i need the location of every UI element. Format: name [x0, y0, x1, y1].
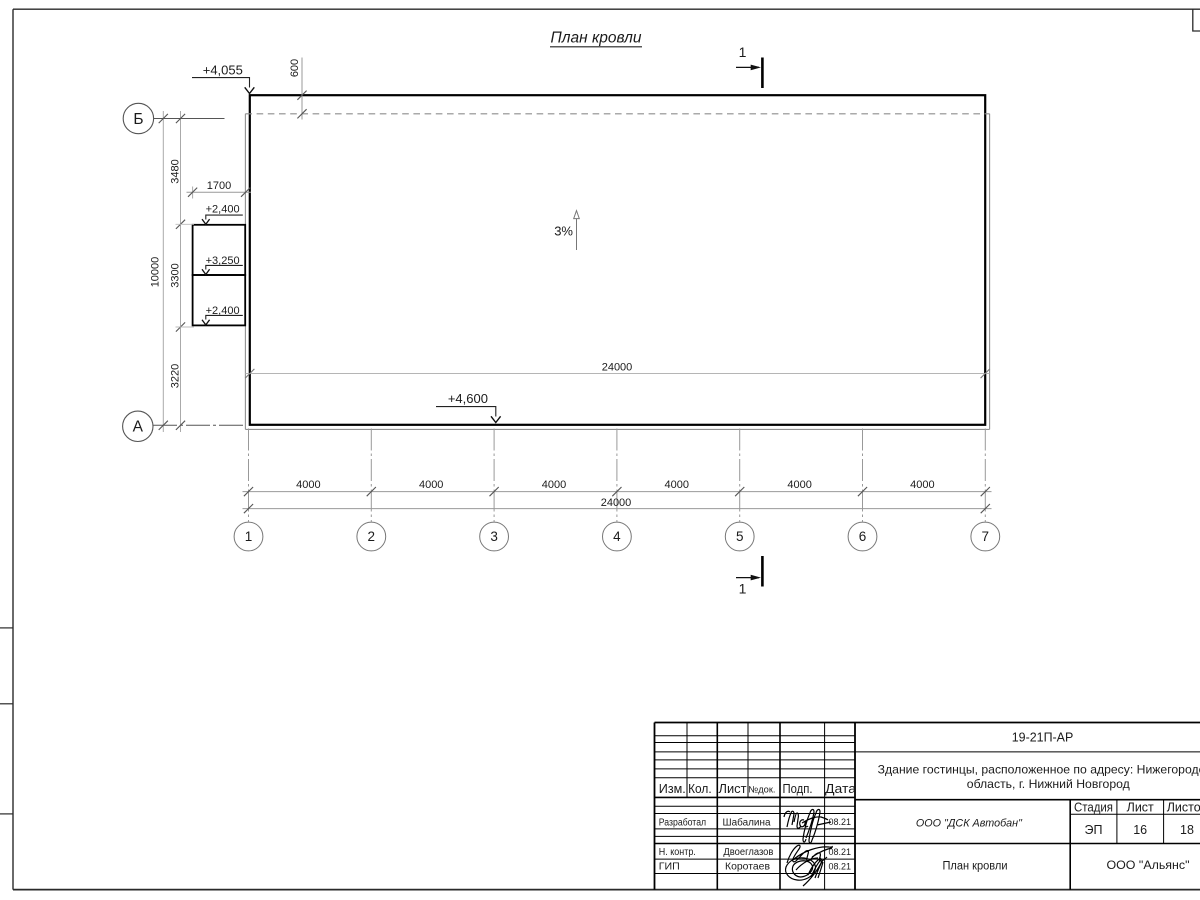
svg-text:4000: 4000 [787, 479, 811, 491]
svg-text:5: 5 [736, 529, 744, 544]
svg-text:Здание гостинцы, расположенное: Здание гостинцы, расположенное по адресу… [878, 762, 1200, 776]
svg-text:4000: 4000 [542, 479, 566, 491]
svg-text:1: 1 [245, 529, 253, 544]
svg-text:Изм.: Изм. [659, 781, 686, 796]
svg-text:ЭП: ЭП [1085, 823, 1103, 837]
svg-text:План кровли: План кровли [943, 861, 1008, 873]
svg-text:3300: 3300 [170, 263, 182, 287]
svg-text:3: 3 [490, 529, 498, 544]
svg-text:10000: 10000 [150, 257, 162, 288]
svg-text:4000: 4000 [665, 479, 689, 491]
svg-text:Шабалина: Шабалина [723, 817, 772, 828]
svg-text:16: 16 [1133, 823, 1147, 837]
svg-text:1: 1 [739, 44, 747, 60]
svg-text:План кровли: План кровли [551, 30, 642, 47]
svg-text:Кол.: Кол. [688, 781, 712, 796]
svg-text:4000: 4000 [910, 479, 934, 491]
svg-text:1700: 1700 [207, 180, 231, 192]
svg-text:Коротаев: Коротаев [725, 862, 770, 873]
svg-text:Лист: Лист [1127, 801, 1154, 815]
svg-text:Б: Б [133, 111, 143, 128]
svg-text:3480: 3480 [170, 159, 182, 183]
svg-text:+4,600: +4,600 [448, 391, 488, 406]
svg-text:А: А [133, 419, 144, 436]
svg-text:600: 600 [289, 59, 301, 77]
svg-text:ООО "Альянс": ООО "Альянс" [1107, 858, 1190, 872]
svg-text:4000: 4000 [419, 479, 443, 491]
svg-text:7: 7 [982, 529, 990, 544]
svg-text:Н. контр.: Н. контр. [659, 847, 696, 858]
svg-text:Подп.: Подп. [783, 781, 813, 796]
svg-text:Лист: Лист [719, 781, 747, 796]
svg-text:18: 18 [1180, 823, 1194, 837]
svg-text:+4,055: +4,055 [203, 63, 243, 78]
svg-text:6: 6 [859, 529, 867, 544]
svg-text:Двоеглазов: Двоеглазов [723, 847, 773, 858]
svg-text:Дата: Дата [825, 781, 857, 796]
svg-text:+2,400: +2,400 [206, 204, 240, 216]
svg-text:24000: 24000 [601, 497, 632, 509]
svg-text:область, г. Нижний Новгород: область, г. Нижний Новгород [967, 777, 1130, 791]
svg-text:ООО "ДСК Автобан": ООО "ДСК Автобан" [916, 817, 1023, 829]
svg-text:3%: 3% [554, 224, 573, 239]
svg-text:Разработал: Разработал [659, 817, 707, 828]
svg-text:4: 4 [613, 529, 621, 544]
svg-text:3220: 3220 [170, 364, 182, 388]
svg-text:19-21П-АР: 19-21П-АР [1012, 731, 1074, 745]
svg-text:08.21: 08.21 [829, 817, 852, 827]
svg-text:Листов: Листов [1167, 801, 1200, 815]
svg-text:2: 2 [368, 529, 376, 544]
svg-text:№док.: №док. [748, 785, 775, 795]
svg-text:4000: 4000 [296, 479, 320, 491]
svg-text:24000: 24000 [602, 362, 633, 374]
svg-text:08.21: 08.21 [829, 862, 852, 872]
svg-text:Стадия: Стадия [1074, 801, 1113, 815]
svg-text:1: 1 [739, 580, 747, 596]
svg-text:ГИП: ГИП [659, 862, 680, 873]
